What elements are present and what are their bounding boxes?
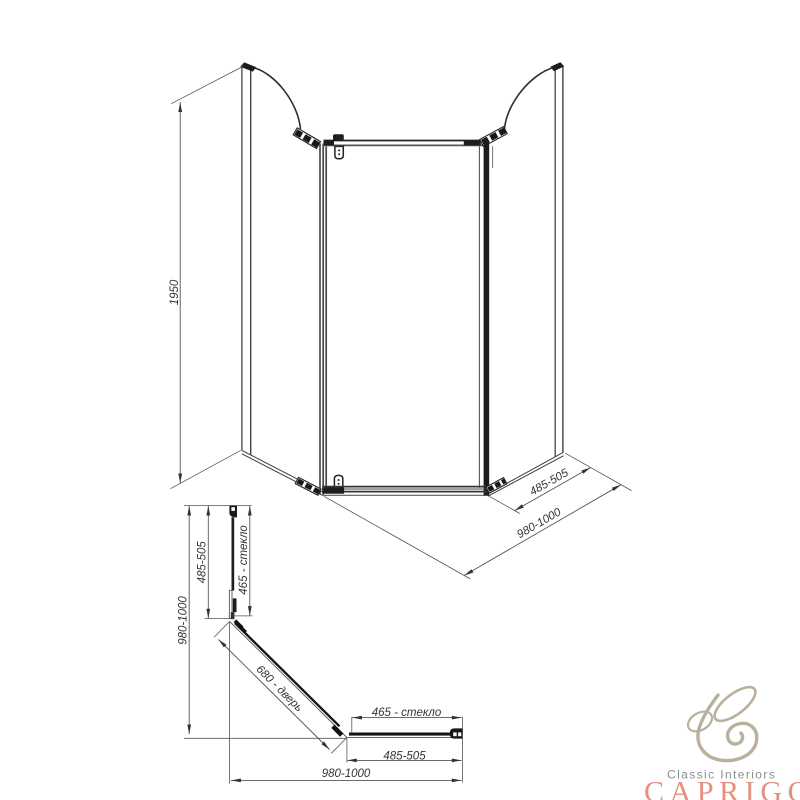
svg-text:980-1000: 980-1000 (177, 596, 189, 645)
svg-text:465 - стекло: 465 - стекло (238, 525, 250, 595)
svg-text:CAPRIGO: CAPRIGO (644, 776, 800, 800)
svg-text:1950: 1950 (169, 279, 181, 305)
svg-text:980-1000: 980-1000 (322, 768, 371, 780)
svg-text:485-505: 485-505 (197, 541, 209, 584)
svg-text:465 - стекло: 465 - стекло (372, 707, 442, 719)
svg-text:485-505: 485-505 (383, 750, 426, 762)
